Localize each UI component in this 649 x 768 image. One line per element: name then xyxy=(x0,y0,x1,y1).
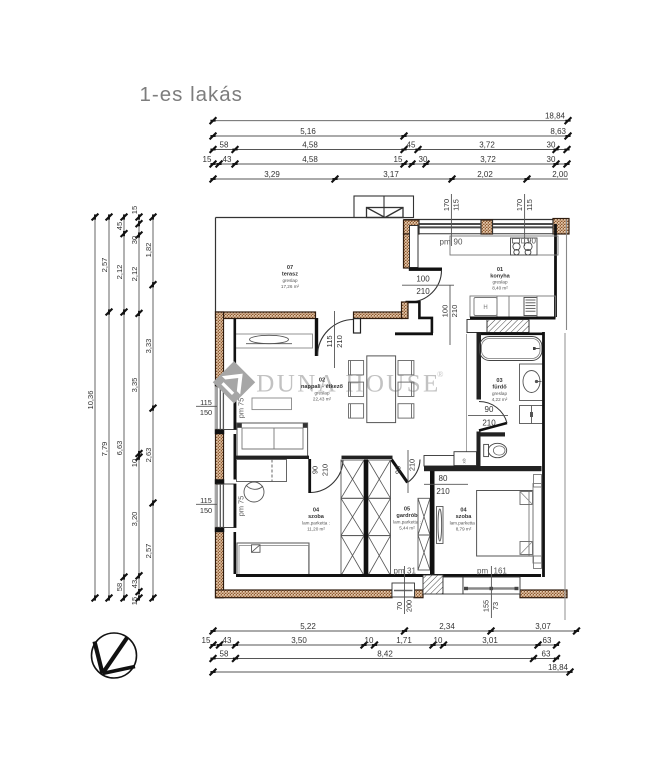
svg-text:2,63: 2,63 xyxy=(144,448,153,463)
svg-text:170: 170 xyxy=(442,199,451,211)
svg-text:30: 30 xyxy=(419,155,428,164)
svg-text:210: 210 xyxy=(482,419,496,428)
svg-text:nappali - étkező: nappali - étkező xyxy=(301,384,344,390)
svg-text:3,35: 3,35 xyxy=(130,378,139,393)
svg-text:lam.parketta :: lam.parketta : xyxy=(450,521,478,526)
svg-text:3,33: 3,33 xyxy=(144,339,153,354)
svg-text:3,07: 3,07 xyxy=(535,622,551,631)
svg-text:lam.parketta :: lam.parketta : xyxy=(393,520,421,525)
svg-text:szoba: szoba xyxy=(308,514,325,520)
svg-text:11,20 m²: 11,20 m² xyxy=(307,527,325,532)
svg-text:73: 73 xyxy=(491,602,500,610)
svg-text:15: 15 xyxy=(203,155,212,164)
svg-text:210: 210 xyxy=(408,459,417,471)
svg-text:3,17: 3,17 xyxy=(383,170,399,179)
svg-text:2,57: 2,57 xyxy=(100,258,109,273)
svg-text:greslap: greslap xyxy=(492,391,508,396)
svg-text:115: 115 xyxy=(200,398,212,407)
svg-text:150: 150 xyxy=(200,506,212,515)
svg-text:100: 100 xyxy=(441,305,450,318)
svg-text:45: 45 xyxy=(115,222,124,230)
svg-text:greslap: greslap xyxy=(282,278,298,283)
svg-text:170: 170 xyxy=(515,199,524,211)
svg-text:greslap: greslap xyxy=(314,391,330,396)
svg-text:10: 10 xyxy=(130,459,139,467)
svg-text:gardrób: gardrób xyxy=(396,513,418,519)
svg-text:02: 02 xyxy=(319,378,325,384)
svg-text:15: 15 xyxy=(130,597,139,605)
svg-text:115: 115 xyxy=(525,199,534,211)
svg-text:58: 58 xyxy=(115,583,124,591)
svg-text:xö: xö xyxy=(462,458,468,463)
svg-text:10: 10 xyxy=(434,636,443,645)
svg-text:®: ® xyxy=(437,369,444,379)
svg-text:150: 150 xyxy=(200,408,212,417)
svg-text:4,22 m²: 4,22 m² xyxy=(492,397,508,402)
svg-text:22,43 m²: 22,43 m² xyxy=(313,397,332,402)
svg-text:30: 30 xyxy=(547,155,556,164)
svg-text:10: 10 xyxy=(365,636,374,645)
svg-text:terasz: terasz xyxy=(282,272,298,278)
svg-text:3,20: 3,20 xyxy=(130,512,139,527)
svg-text:210: 210 xyxy=(436,487,450,496)
svg-text:6,63: 6,63 xyxy=(115,441,124,456)
svg-text:3,29: 3,29 xyxy=(264,170,280,179)
svg-text:2,34: 2,34 xyxy=(439,622,455,631)
svg-text:fürdő: fürdő xyxy=(492,385,507,391)
svg-text:210: 210 xyxy=(416,287,430,296)
svg-text:8,40 m²: 8,40 m² xyxy=(492,286,508,291)
svg-text:10,36: 10,36 xyxy=(86,390,95,409)
svg-text:70: 70 xyxy=(395,602,404,610)
svg-text:210: 210 xyxy=(450,305,459,318)
svg-text:3,72: 3,72 xyxy=(480,155,496,164)
svg-text:155: 155 xyxy=(482,600,491,612)
svg-text:45: 45 xyxy=(407,140,416,149)
svg-text:63: 63 xyxy=(542,649,551,658)
svg-text:43: 43 xyxy=(130,580,139,588)
svg-text:pm 75: pm 75 xyxy=(237,398,246,419)
svg-text:1,82: 1,82 xyxy=(144,243,153,258)
svg-text:115: 115 xyxy=(452,199,461,211)
svg-text:58: 58 xyxy=(220,140,229,149)
svg-text:115: 115 xyxy=(325,335,334,347)
svg-text:43: 43 xyxy=(223,636,232,645)
svg-text:90: 90 xyxy=(527,237,536,246)
svg-text:210: 210 xyxy=(335,335,344,348)
svg-text:8,63: 8,63 xyxy=(550,127,566,136)
svg-text:8,42: 8,42 xyxy=(377,649,393,658)
svg-text:43: 43 xyxy=(223,155,232,164)
svg-text:30: 30 xyxy=(130,236,139,244)
svg-text:2,02: 2,02 xyxy=(477,170,493,179)
svg-text:pm: pm xyxy=(394,567,405,576)
svg-text:5,22: 5,22 xyxy=(300,622,316,631)
svg-text:8,79 m²: 8,79 m² xyxy=(456,527,472,532)
svg-text:100: 100 xyxy=(416,275,430,284)
svg-text:210: 210 xyxy=(321,464,330,476)
svg-text:2,12: 2,12 xyxy=(115,265,124,280)
svg-text:H: H xyxy=(483,305,487,311)
svg-text:04: 04 xyxy=(460,508,467,514)
svg-text:2,00: 2,00 xyxy=(552,170,568,179)
svg-text:pm: pm xyxy=(477,567,488,576)
svg-text:pm: pm xyxy=(440,238,451,247)
svg-text:pm 75: pm 75 xyxy=(237,496,246,517)
svg-text:2,12: 2,12 xyxy=(130,267,139,282)
svg-text:15: 15 xyxy=(394,155,403,164)
svg-text:90: 90 xyxy=(311,466,320,474)
svg-text:4,58: 4,58 xyxy=(302,155,318,164)
svg-text:szoba: szoba xyxy=(456,514,473,520)
svg-text:18,84: 18,84 xyxy=(545,112,566,121)
svg-text:17,26 m²: 17,26 m² xyxy=(281,284,300,289)
svg-text:200: 200 xyxy=(405,600,414,612)
svg-text:5,16: 5,16 xyxy=(300,127,316,136)
svg-text:30: 30 xyxy=(547,140,556,149)
svg-text:07: 07 xyxy=(287,265,293,271)
svg-text:greslap: greslap xyxy=(492,280,508,285)
svg-text:04: 04 xyxy=(313,508,320,514)
svg-text:161: 161 xyxy=(494,567,508,576)
svg-text:18,84: 18,84 xyxy=(548,663,569,672)
svg-text:63: 63 xyxy=(543,636,552,645)
svg-text:03: 03 xyxy=(496,378,502,384)
svg-text:31: 31 xyxy=(407,567,416,576)
svg-text:15: 15 xyxy=(130,206,139,214)
svg-text:7,79: 7,79 xyxy=(100,442,109,457)
svg-text:3,72: 3,72 xyxy=(479,140,495,149)
svg-text:01: 01 xyxy=(497,267,503,273)
svg-text:2,57: 2,57 xyxy=(144,544,153,559)
svg-text:115: 115 xyxy=(200,496,212,505)
svg-text:90: 90 xyxy=(394,466,403,474)
svg-text:4,58: 4,58 xyxy=(302,140,318,149)
svg-text:05: 05 xyxy=(404,507,410,513)
svg-text:80: 80 xyxy=(439,474,448,483)
svg-text:1,71: 1,71 xyxy=(396,636,412,645)
svg-text:1-es lakás: 1-es lakás xyxy=(140,83,243,106)
svg-text:3,01: 3,01 xyxy=(482,636,498,645)
svg-text:5,44 m²: 5,44 m² xyxy=(399,526,415,531)
svg-text:3,50: 3,50 xyxy=(291,636,307,645)
svg-text:90: 90 xyxy=(454,238,463,247)
svg-text:90: 90 xyxy=(485,405,494,414)
svg-text:lam.parketta :: lam.parketta : xyxy=(302,521,330,526)
svg-text:15: 15 xyxy=(202,636,211,645)
svg-text:58: 58 xyxy=(220,649,229,658)
